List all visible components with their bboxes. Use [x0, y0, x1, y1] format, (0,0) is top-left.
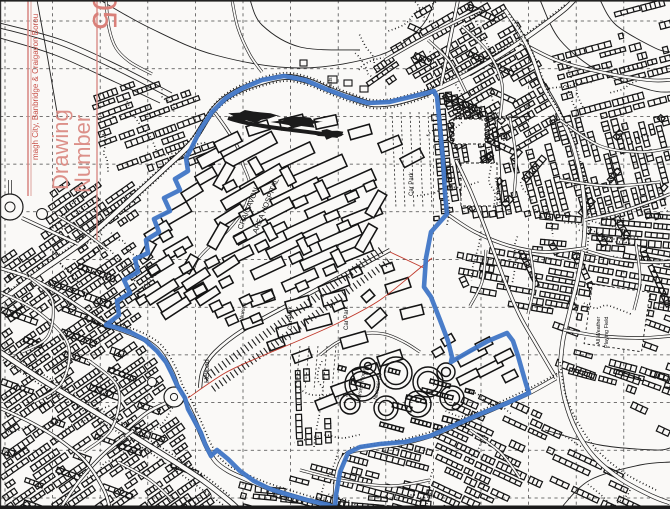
svg-text:Number: Number — [70, 115, 95, 193]
svg-text:Car Pk: Car Pk — [526, 103, 532, 120]
svg-text:Helipad: Helipad — [204, 359, 211, 383]
svg-text:05: 05 — [85, 0, 123, 30]
svg-text:Playing Field: Playing Field — [604, 317, 610, 349]
svg-text:Car Park: Car Park — [288, 305, 294, 330]
svg-text:Car Park: Car Park — [409, 171, 415, 196]
svg-text:All Weather: All Weather — [596, 317, 602, 345]
svg-text:magh City, Banbridge & Craigav: magh City, Banbridge & Craigavon Borou — [31, 14, 40, 160]
